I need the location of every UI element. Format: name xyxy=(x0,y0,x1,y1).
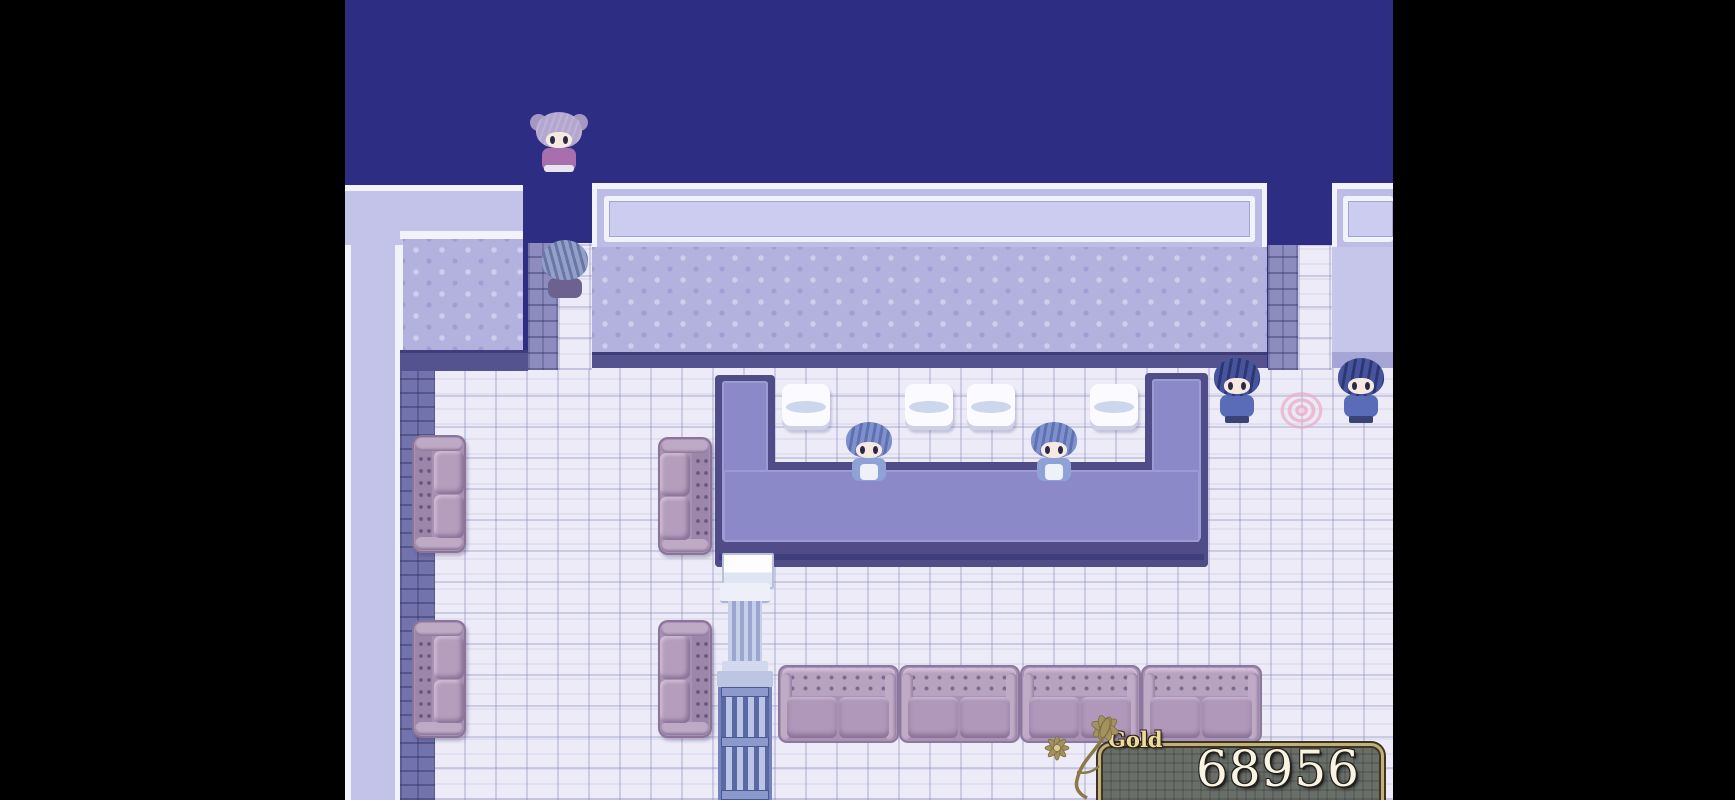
eye xyxy=(1241,382,1246,390)
letterbox-left xyxy=(0,0,345,800)
npc-attendant-left[interactable] xyxy=(843,420,895,488)
northwest-wall-face xyxy=(403,239,523,350)
northeast-wall-panel xyxy=(1343,196,1393,242)
stool-cushion xyxy=(1094,401,1134,413)
counter-bottom-shadow-line xyxy=(719,554,1204,560)
npc-hair xyxy=(542,240,588,280)
couch-backrest xyxy=(415,438,432,550)
northwest-wall-inner-trim xyxy=(400,231,523,239)
couch-cushion xyxy=(660,636,690,679)
south-couch-row xyxy=(778,665,1263,743)
couch-cushion xyxy=(434,451,464,494)
row-couch xyxy=(778,665,899,743)
player-character[interactable] xyxy=(533,110,585,178)
stool-cushion xyxy=(971,401,1011,413)
stool-cushion xyxy=(786,401,826,413)
stool-cushion xyxy=(909,401,949,413)
bar-stool xyxy=(967,384,1015,430)
lounge-couch-west-lower xyxy=(412,620,466,738)
npc-patron-right[interactable] xyxy=(1335,356,1387,424)
bar-stool xyxy=(782,384,830,430)
npc-attendant-right[interactable] xyxy=(1028,420,1080,488)
npc-body xyxy=(1344,395,1378,417)
eye xyxy=(563,136,568,144)
npc-body xyxy=(548,278,582,298)
couch-cushion xyxy=(434,495,464,538)
column-shaft xyxy=(728,601,762,663)
couch-arm xyxy=(415,438,463,451)
couch-backrest xyxy=(692,623,709,735)
screenshot-stage: Gold 68956 xyxy=(0,0,1735,800)
slatted-rack xyxy=(718,687,772,800)
northeast-wall-parapet xyxy=(1332,183,1393,247)
eye xyxy=(1045,446,1050,454)
eye xyxy=(550,136,555,144)
couch-arm xyxy=(415,537,463,550)
npc-legs xyxy=(1349,416,1373,423)
bar-stool xyxy=(905,384,953,430)
bar-stool xyxy=(1090,384,1138,430)
eye xyxy=(860,446,865,454)
north-wall-parapet xyxy=(592,183,1267,247)
couch-arm xyxy=(415,623,463,636)
couch-arm xyxy=(661,623,709,636)
row-couch xyxy=(899,665,1020,743)
couch-cushion xyxy=(434,680,464,723)
couch-cushion xyxy=(960,697,1010,738)
eye xyxy=(1058,446,1063,454)
couch-backrest xyxy=(415,623,432,735)
couch-backrest xyxy=(782,668,895,696)
rack-rail xyxy=(721,737,769,747)
npc-doorway[interactable] xyxy=(539,238,591,306)
lounge-couch-east-lower xyxy=(658,620,712,738)
gold-leaf-ornament-icon xyxy=(1033,702,1151,800)
rack-rail xyxy=(721,790,769,800)
couch-cushion xyxy=(660,453,690,496)
northeast-wall-body xyxy=(1330,247,1393,352)
npc-apron xyxy=(1045,464,1063,480)
east-doorway-dark-tiles xyxy=(1268,245,1298,370)
couch-cushion xyxy=(787,697,837,738)
couch-cushion xyxy=(908,697,958,738)
couch-cushion xyxy=(660,680,690,723)
npc-apron xyxy=(860,464,878,480)
counter-bottom-top xyxy=(723,470,1200,542)
eye xyxy=(873,446,878,454)
eye xyxy=(1228,382,1233,390)
couch-arm xyxy=(661,440,709,453)
couch-arm xyxy=(661,539,709,552)
letterbox-right xyxy=(1393,0,1735,800)
northwest-wall-edge xyxy=(400,350,528,371)
lounge-couch-west-upper xyxy=(412,435,466,553)
couch-backrest xyxy=(692,440,709,552)
column-plinth xyxy=(717,671,773,687)
north-wall-face xyxy=(592,247,1267,352)
column-stack xyxy=(715,553,775,800)
east-doorway-light-tiles xyxy=(1298,245,1332,370)
couch-backrest xyxy=(903,668,1016,696)
npc-body xyxy=(1220,395,1254,417)
npc-legs xyxy=(1225,416,1249,423)
couch-backrest xyxy=(1145,668,1258,696)
npc-patron-left[interactable] xyxy=(1211,356,1263,424)
couch-cushion xyxy=(434,636,464,679)
couch-cushion xyxy=(1202,697,1252,738)
couch-cushion xyxy=(839,697,889,738)
couch-arm xyxy=(661,722,709,735)
pink-round-rug xyxy=(1278,390,1325,431)
couch-backrest xyxy=(1024,668,1137,696)
dress-hem xyxy=(544,165,574,172)
couch-cushion xyxy=(660,497,690,540)
rack-rail xyxy=(721,687,769,697)
column-capital xyxy=(720,583,770,603)
eye xyxy=(1352,382,1357,390)
game-viewport[interactable]: Gold 68956 xyxy=(345,0,1393,800)
north-wall-panel xyxy=(604,196,1255,242)
couch-arm xyxy=(415,722,463,735)
eye xyxy=(1365,382,1370,390)
lounge-couch-east-upper xyxy=(658,437,712,555)
